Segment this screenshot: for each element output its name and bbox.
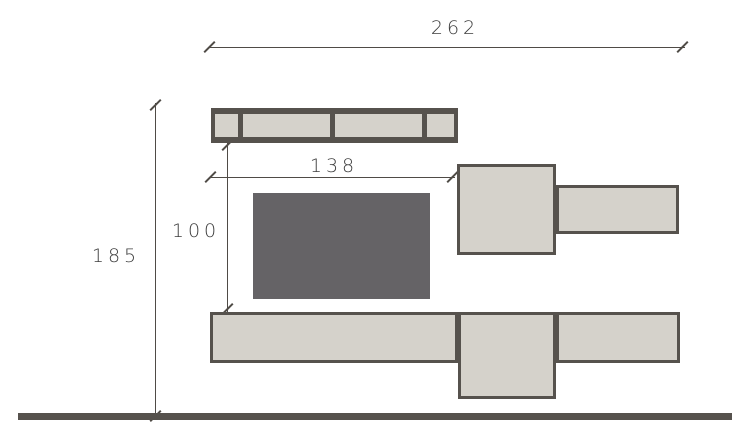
shelf-compartment: [335, 114, 422, 137]
dim-middle-gap-label: 100: [156, 220, 236, 242]
dim-overall-height-label: 185: [76, 245, 156, 267]
bottom-right-shelf: [556, 312, 680, 363]
shelf-compartment: [215, 114, 238, 137]
dim-overall-width-line: [208, 47, 685, 48]
dim-left-section-label: 138: [294, 155, 374, 177]
dim-left-section-line: [209, 177, 455, 178]
dim-overall-width-label: 262: [415, 17, 495, 39]
floor-line: [18, 413, 732, 420]
drawing-canvas: 262 185 100 138: [0, 0, 755, 434]
top-shelf: [211, 108, 458, 143]
tv-panel: [253, 193, 430, 299]
bottom-center-cabinet: [458, 312, 556, 399]
shelf-compartment: [243, 114, 330, 137]
bottom-shelf: [210, 312, 458, 363]
mid-right-shelf: [556, 185, 679, 234]
mid-right-cabinet: [457, 164, 556, 255]
shelf-compartment: [427, 114, 454, 137]
